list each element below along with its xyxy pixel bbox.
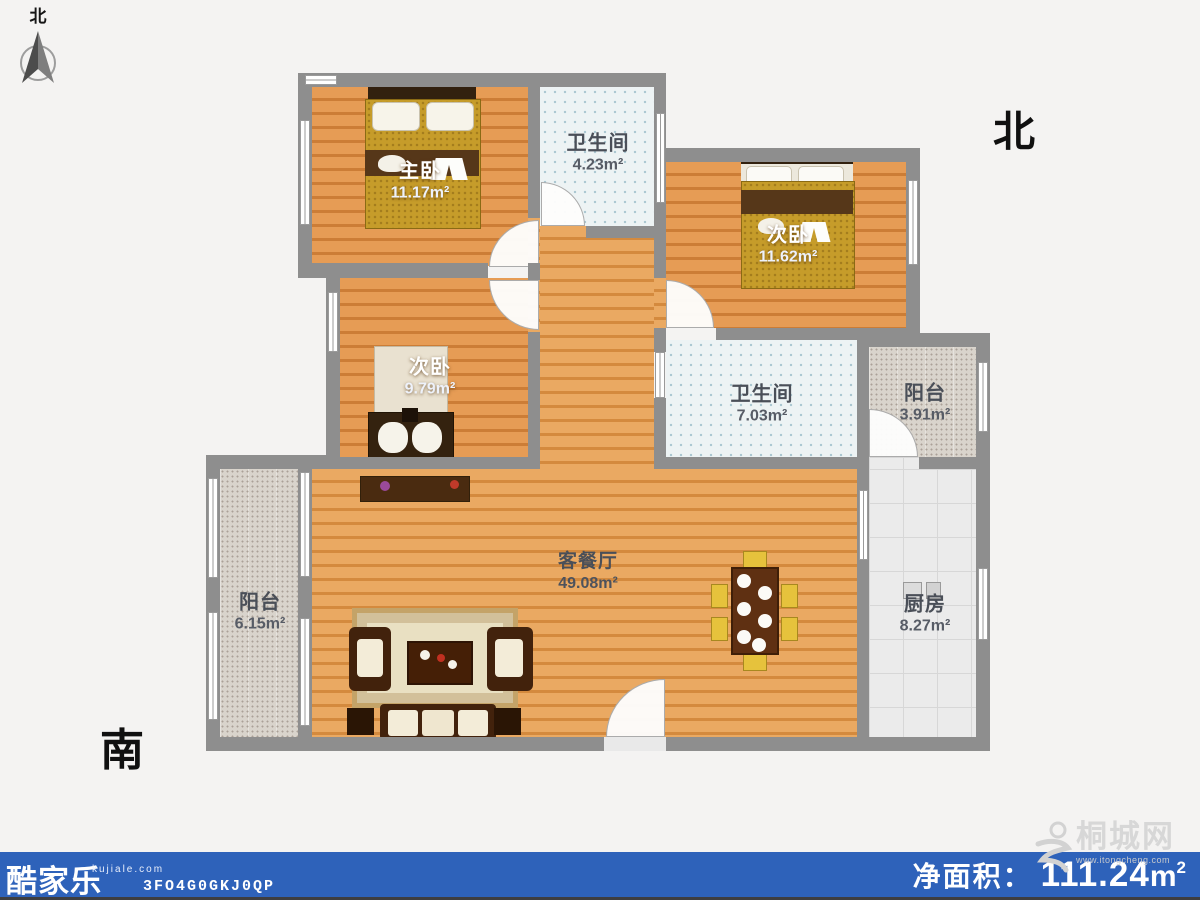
- bedroom-west-pillow: [412, 422, 442, 453]
- watermark: 桐城网 www.itongcheng.com: [1032, 820, 1175, 878]
- room-label-bathroom-mid: 卫生间 7.03m²: [731, 382, 794, 425]
- side-table: [494, 708, 521, 735]
- window: [208, 612, 218, 720]
- window: [300, 120, 310, 225]
- watermark-logo-icon: [1032, 820, 1074, 878]
- plan-code: 3FO4G0GKJ0QP: [143, 878, 275, 895]
- side-table: [347, 708, 374, 735]
- master-bed-pillow: [426, 102, 474, 131]
- wall: [528, 263, 540, 280]
- sofa-cushion: [458, 710, 488, 736]
- window: [208, 478, 218, 578]
- wall: [654, 328, 666, 352]
- dining-chair: [743, 551, 767, 568]
- kujiale-domain: kujiale.com: [92, 864, 164, 875]
- dining-plate: [737, 602, 751, 616]
- compass-arrow-icon: [10, 27, 66, 89]
- wall: [528, 332, 540, 469]
- window: [305, 75, 337, 85]
- flower-decor: [380, 481, 390, 491]
- room-label-balcony-west: 阳台 6.15m²: [235, 590, 286, 633]
- entry-threshold: [604, 737, 666, 751]
- dining-chair: [711, 617, 728, 641]
- wall: [654, 148, 920, 162]
- wall: [716, 328, 920, 340]
- compass-north-label: 北: [8, 2, 68, 27]
- wall: [857, 333, 869, 469]
- wall: [206, 737, 604, 751]
- wall: [206, 455, 340, 469]
- armchair-right-cushion: [495, 639, 523, 677]
- room-label-balcony-east: 阳台 3.91m²: [900, 381, 951, 424]
- wall: [919, 457, 990, 469]
- floorplan-canvas: 北 北 南: [0, 0, 1200, 900]
- coffee-table-item: [420, 650, 430, 660]
- door-gap-patch: [869, 457, 919, 469]
- watermark-site-url: www.itongcheng.com: [1076, 855, 1175, 865]
- dining-plate: [758, 586, 772, 600]
- dining-plate: [752, 638, 766, 652]
- window: [908, 180, 918, 265]
- south-direction-label: 南: [100, 714, 144, 778]
- kujiale-logo: 酷家乐: [6, 856, 102, 900]
- bedroom-ne-blanket-fold: [741, 190, 853, 214]
- armchair-left-cushion: [357, 639, 383, 677]
- door-gap-patch: [654, 278, 666, 328]
- wall: [298, 73, 666, 87]
- sliding-door: [300, 618, 310, 726]
- dining-chair: [781, 617, 798, 641]
- bedroom-west-bed-lamp: [402, 408, 418, 422]
- room-label-kitchen: 厨房 8.27m²: [900, 592, 951, 635]
- flower-decor: [450, 480, 459, 489]
- dining-plate: [737, 630, 751, 644]
- wall: [528, 73, 540, 218]
- sliding-door: [300, 472, 310, 577]
- net-area-label: 净面积：: [913, 855, 1033, 895]
- master-bed-pillow: [372, 102, 420, 131]
- wall: [326, 457, 540, 469]
- sliding-door: [859, 490, 868, 560]
- net-area-unit-sup: 2: [1177, 858, 1186, 878]
- wall: [654, 457, 869, 469]
- window: [328, 292, 338, 352]
- living-corridor-floor: [540, 226, 654, 469]
- north-direction-label: 北: [993, 98, 1035, 159]
- bedroom-west-pillow: [378, 422, 408, 453]
- compass: 北: [8, 2, 68, 94]
- dining-chair: [781, 584, 798, 608]
- room-label-bedroom-ne: 次卧 11.62m²: [759, 223, 818, 266]
- window: [656, 113, 665, 203]
- watermark-site-name: 桐城网: [1076, 820, 1175, 854]
- room-label-bathroom-top: 卫生间 4.23m²: [567, 131, 630, 174]
- room-label-living-dining: 客餐厅 49.08m²: [558, 551, 618, 593]
- room-label-bedroom-west: 次卧 9.79m²: [405, 355, 456, 398]
- window: [978, 362, 988, 432]
- wall: [298, 263, 488, 278]
- coffee-table-item: [437, 654, 445, 662]
- coffee-table-item: [448, 660, 457, 669]
- dining-chair: [711, 584, 728, 608]
- dining-chair: [743, 654, 767, 671]
- watermark-text: 桐城网 www.itongcheng.com: [1076, 820, 1175, 865]
- coffee-table: [407, 641, 473, 685]
- window: [978, 568, 988, 640]
- dining-plate: [758, 614, 772, 628]
- door-gap-patch: [540, 226, 586, 238]
- sofa-cushion: [422, 710, 454, 736]
- room-label-master-bedroom: 主卧 11.17m²: [391, 159, 450, 202]
- dining-plate: [737, 574, 751, 588]
- bathroom-mid-door: [655, 352, 665, 398]
- wall: [666, 737, 990, 751]
- footer-bar: 酷家乐 kujiale.com 3FO4G0GKJ0QP 净面积： 111.24…: [0, 852, 1200, 897]
- sofa-cushion: [388, 710, 418, 736]
